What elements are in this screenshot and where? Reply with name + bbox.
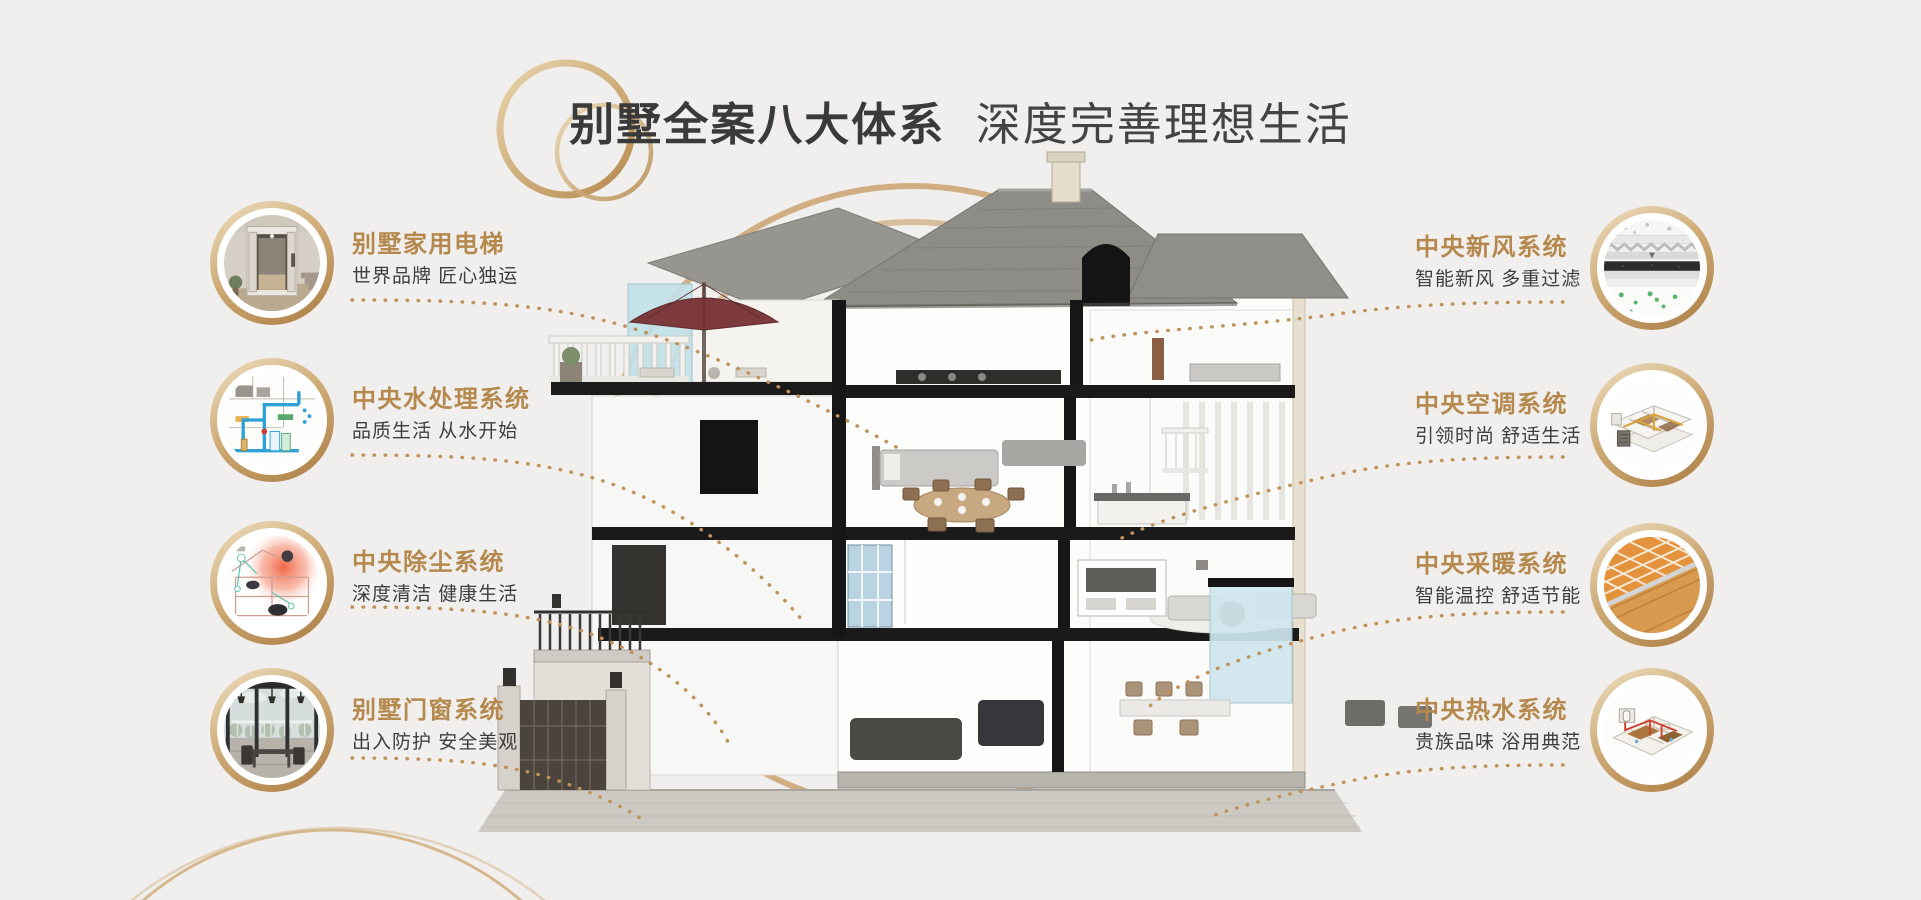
badge-dust (210, 521, 334, 645)
connector-ac (1118, 457, 1563, 540)
feature-water-title: 中央水处理系统 (352, 386, 612, 413)
feature-dust-title: 中央除尘系统 (352, 549, 612, 576)
corner-arcs (8, 828, 668, 900)
feature-ac-subtitle: 引领时尚 舒适生活 (1415, 426, 1675, 448)
feature-hot-water-subtitle: 贵族品味 浴用典范 (1415, 732, 1675, 754)
feature-water-subtitle: 品质生活 从水开始 (352, 421, 612, 443)
feature-dust-subtitle: 深度清洁 健康生活 (352, 584, 612, 606)
badge-elevator-photo (224, 215, 320, 311)
feature-door-window: 别墅门窗系统 出入防护 安全美观 (352, 697, 612, 754)
feature-fresh-air-subtitle: 智能新风 多重过滤 (1415, 269, 1675, 291)
feature-door-window-title: 别墅门窗系统 (352, 697, 612, 724)
connector-fresh-air (1082, 302, 1563, 342)
feature-fresh-air-title: 中央新风系统 (1415, 234, 1675, 261)
feature-fresh-air: 中央新风系统 智能新风 多重过滤 (1415, 234, 1675, 291)
villa-cutaway-illustration (478, 152, 1432, 832)
page-title-bold: 别墅全案八大体系 (569, 99, 945, 150)
feature-dust: 中央除尘系统 深度清洁 健康生活 (352, 549, 612, 606)
badge-door-window-photo (224, 682, 320, 778)
feature-ac-title: 中央空调系统 (1415, 391, 1675, 418)
feature-heating-subtitle: 智能温控 舒适节能 (1415, 586, 1675, 608)
water-treatment-icon (224, 372, 320, 468)
feature-elevator-title: 别墅家用电梯 (352, 231, 612, 258)
background-arcs (600, 186, 1224, 810)
feature-hot-water-title: 中央热水系统 (1415, 697, 1675, 724)
feature-water: 中央水处理系统 品质生活 从水开始 (352, 386, 612, 443)
page-title-light: 深度完善理想生活 (976, 99, 1352, 150)
badge-water (210, 358, 334, 482)
badge-door-window-ring (217, 675, 327, 785)
feature-hot-water: 中央热水系统 贵族品味 浴用典范 (1415, 697, 1675, 754)
feature-heating-title: 中央采暖系统 (1415, 551, 1675, 578)
connector-heating (1150, 612, 1563, 706)
connector-door-window (352, 758, 640, 818)
feature-door-window-subtitle: 出入防护 安全美观 (352, 732, 612, 754)
badge-elevator (210, 201, 334, 325)
villa-systems-poster: 别墅全案八大体系 深度完善理想生活 (0, 0, 1921, 900)
connector-hot-water (1212, 765, 1563, 816)
elevator-icon (224, 215, 320, 311)
feature-elevator: 别墅家用电梯 世界品牌 匠心独运 (352, 231, 612, 288)
badge-water-photo (224, 372, 320, 468)
badge-water-ring (217, 365, 327, 475)
door-window-icon (224, 682, 320, 778)
feature-elevator-subtitle: 世界品牌 匠心独运 (352, 266, 612, 288)
badge-elevator-ring (217, 208, 327, 318)
badge-dust-ring (217, 528, 327, 638)
badge-door-window (210, 668, 334, 792)
page-title: 别墅全案八大体系 深度完善理想生活 (0, 88, 1921, 153)
feature-ac: 中央空调系统 引领时尚 舒适生活 (1415, 391, 1675, 448)
dust-removal-icon (224, 535, 320, 631)
badge-dust-photo (224, 535, 320, 631)
feature-heating: 中央采暖系统 智能温控 舒适节能 (1415, 551, 1675, 608)
